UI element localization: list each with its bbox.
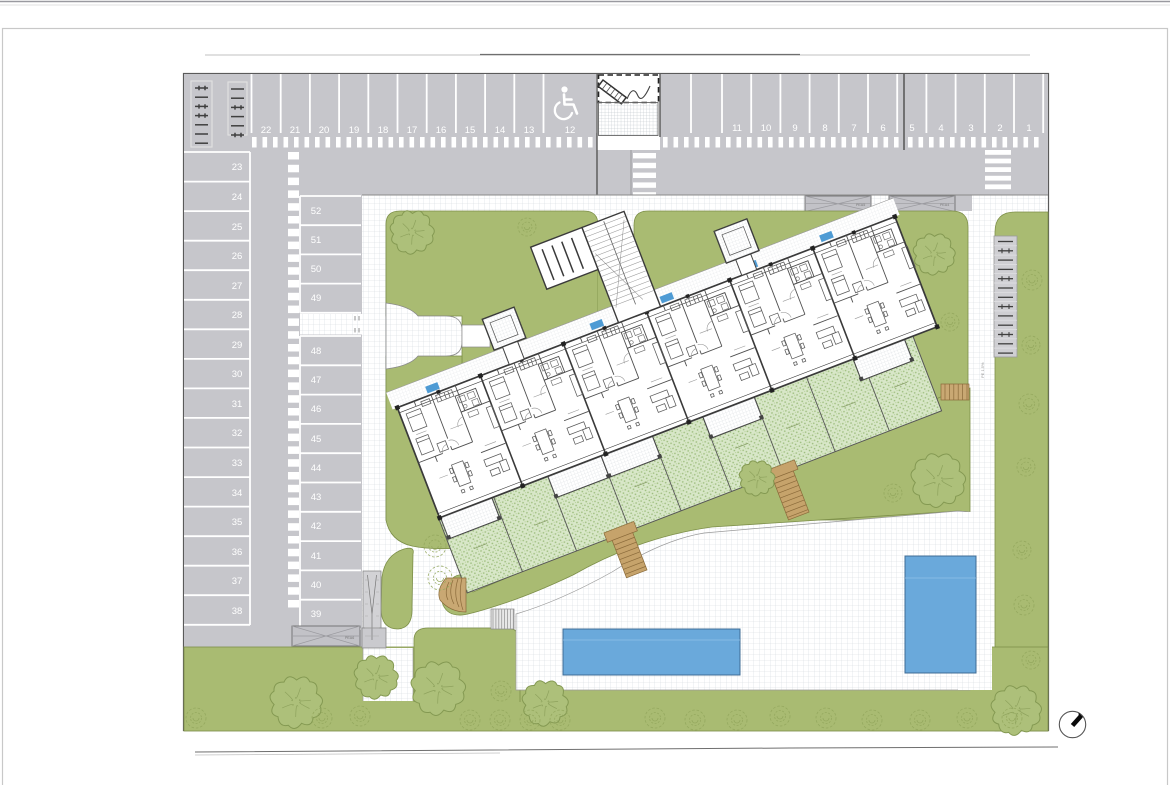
svg-text:28: 28 bbox=[232, 310, 243, 321]
svg-text:51: 51 bbox=[311, 235, 322, 246]
svg-text:9: 9 bbox=[792, 123, 797, 134]
svg-text:49: 49 bbox=[311, 293, 322, 304]
svg-text:34: 34 bbox=[232, 488, 243, 499]
svg-text:PEA5: PEA5 bbox=[856, 203, 865, 207]
svg-text:16: 16 bbox=[436, 125, 447, 136]
svg-text:39: 39 bbox=[311, 609, 322, 620]
svg-text:36: 36 bbox=[232, 547, 243, 558]
svg-text:19: 19 bbox=[349, 125, 360, 136]
svg-text:12: 12 bbox=[565, 125, 576, 136]
svg-text:29: 29 bbox=[232, 340, 243, 351]
svg-text:46: 46 bbox=[311, 404, 322, 415]
svg-text:31: 31 bbox=[232, 399, 243, 410]
svg-text:40: 40 bbox=[311, 580, 322, 591]
svg-text:24: 24 bbox=[232, 192, 243, 203]
svg-text:17: 17 bbox=[407, 125, 418, 136]
svg-text:22: 22 bbox=[261, 125, 272, 136]
svg-text:26: 26 bbox=[232, 251, 243, 262]
svg-text:50: 50 bbox=[311, 264, 322, 275]
svg-text:14: 14 bbox=[495, 125, 506, 136]
svg-text:38: 38 bbox=[232, 606, 243, 617]
svg-text:PE 1.5%: PE 1.5% bbox=[980, 362, 985, 378]
svg-text:27: 27 bbox=[232, 281, 243, 292]
svg-text:20: 20 bbox=[319, 125, 330, 136]
svg-text:32: 32 bbox=[232, 428, 243, 439]
svg-text:52: 52 bbox=[311, 206, 322, 217]
svg-text:1: 1 bbox=[1026, 123, 1031, 134]
svg-text:15: 15 bbox=[465, 125, 476, 136]
svg-text:42: 42 bbox=[311, 521, 322, 532]
svg-text:44: 44 bbox=[311, 463, 322, 474]
svg-text:37: 37 bbox=[232, 576, 243, 587]
svg-text:35: 35 bbox=[232, 517, 243, 528]
svg-text:6: 6 bbox=[880, 123, 885, 134]
svg-text:PEA6: PEA6 bbox=[345, 636, 354, 640]
svg-text:4: 4 bbox=[938, 123, 943, 134]
svg-text:48: 48 bbox=[311, 346, 322, 357]
svg-text:10: 10 bbox=[761, 123, 772, 134]
svg-text:8: 8 bbox=[822, 123, 827, 134]
svg-text:2: 2 bbox=[997, 123, 1002, 134]
svg-text:43: 43 bbox=[311, 492, 322, 503]
svg-text:21: 21 bbox=[290, 125, 301, 136]
svg-text:23: 23 bbox=[232, 162, 243, 173]
svg-text:13: 13 bbox=[524, 125, 535, 136]
svg-text:3: 3 bbox=[968, 123, 973, 134]
svg-text:25: 25 bbox=[232, 222, 243, 233]
svg-text:PEA4: PEA4 bbox=[940, 203, 949, 207]
svg-text:30: 30 bbox=[232, 369, 243, 380]
svg-text:45: 45 bbox=[311, 434, 322, 445]
svg-text:11: 11 bbox=[732, 123, 742, 134]
svg-text:18: 18 bbox=[378, 125, 389, 136]
svg-text:47: 47 bbox=[311, 375, 322, 386]
svg-text:7: 7 bbox=[851, 123, 856, 134]
svg-text:5: 5 bbox=[909, 123, 914, 134]
svg-text:41: 41 bbox=[311, 551, 322, 562]
svg-text:33: 33 bbox=[232, 458, 243, 469]
